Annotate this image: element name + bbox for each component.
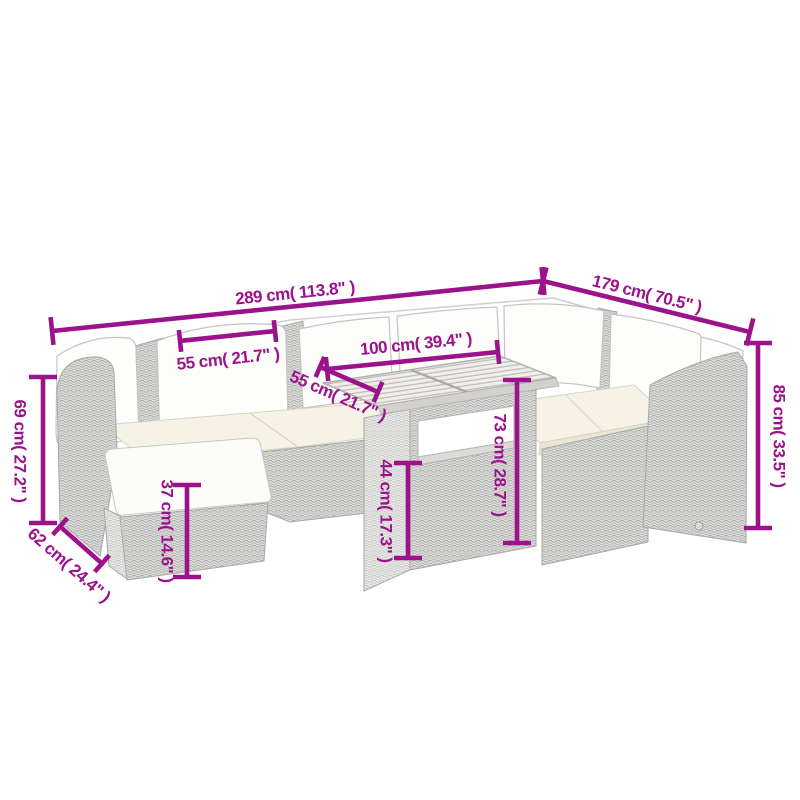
- furniture-illustration: [0, 0, 800, 800]
- dim-line-69: [29, 377, 57, 523]
- arm-detail-hole: [695, 522, 703, 530]
- dim-line-85: [744, 343, 772, 528]
- dim-label-37: 37 cm( 14.6" ): [159, 479, 176, 582]
- dim-label-85: 85 cm( 33.5" ): [771, 384, 788, 487]
- dim-label-69: 69 cm( 27.2" ): [12, 399, 29, 502]
- dim-label-44: 44 cm( 17.3" ): [378, 459, 395, 562]
- footstool-front-face: [120, 503, 268, 580]
- right-arm-panel: [643, 352, 747, 543]
- dim-label-73: 73 cm( 28.7" ): [492, 413, 509, 516]
- right-sofa-base: [542, 426, 648, 565]
- product-dimension-diagram: 289 cm( 113.8" ) 179 cm( 70.5" ) 85 cm( …: [0, 0, 800, 800]
